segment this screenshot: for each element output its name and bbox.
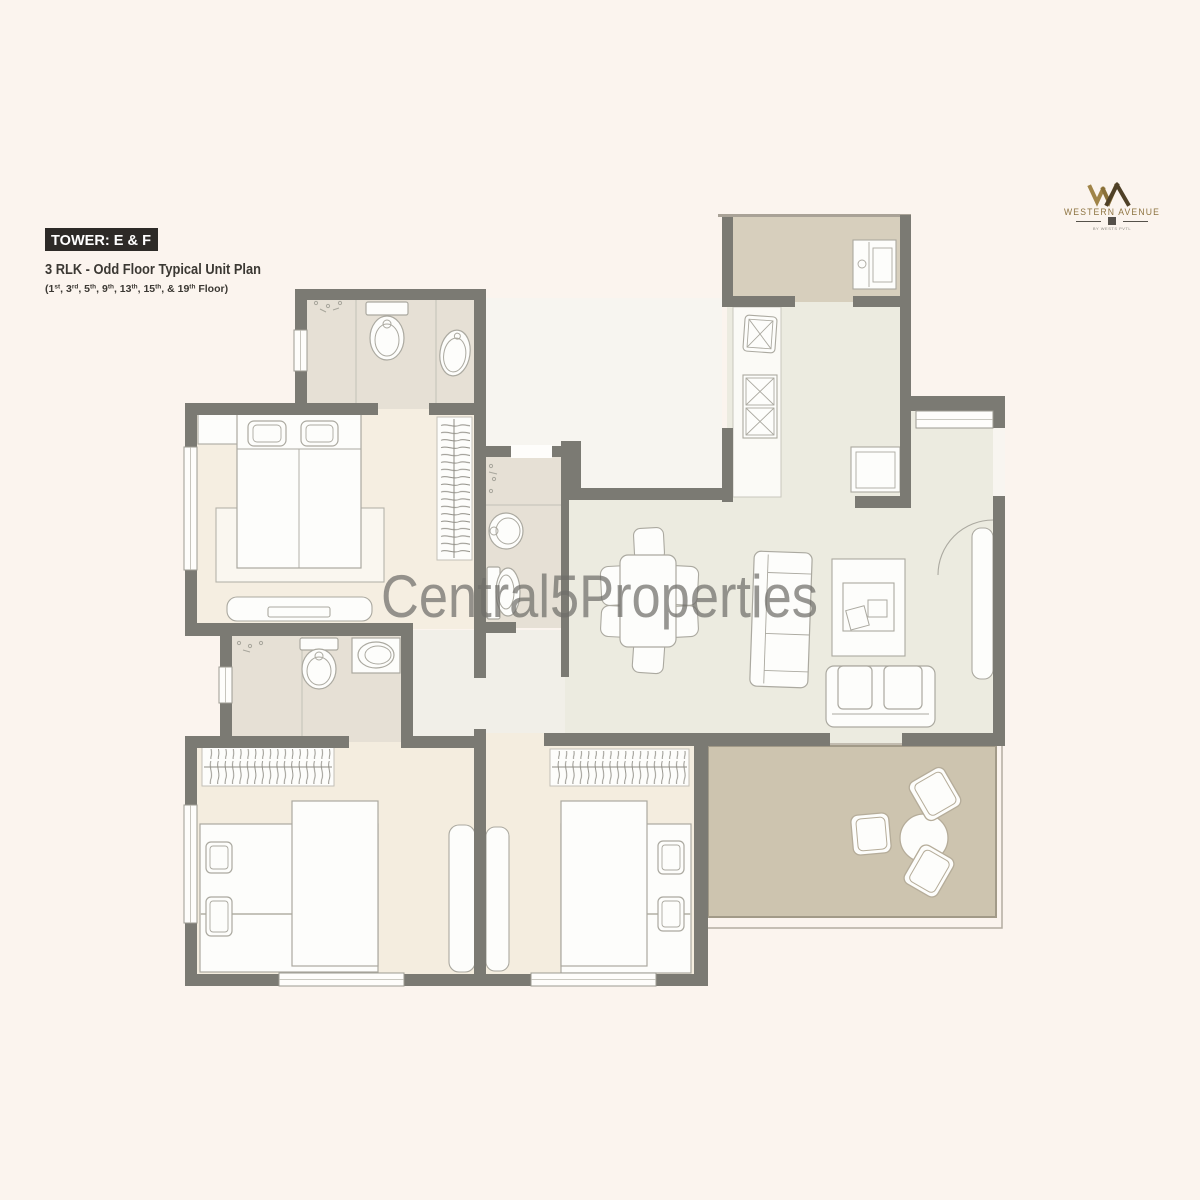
svg-text:3 RLK - Odd Floor Typical Unit: 3 RLK - Odd Floor Typical Unit Plan [45, 262, 261, 278]
svg-text:Central5Properties: Central5Properties [381, 563, 818, 630]
svg-text:TOWER: E & F: TOWER: E & F [51, 232, 151, 249]
svg-text:BY WESTS PVTL: BY WESTS PVTL [1093, 226, 1131, 231]
svg-text:WESTERN AVENUE: WESTERN AVENUE [1064, 207, 1160, 217]
